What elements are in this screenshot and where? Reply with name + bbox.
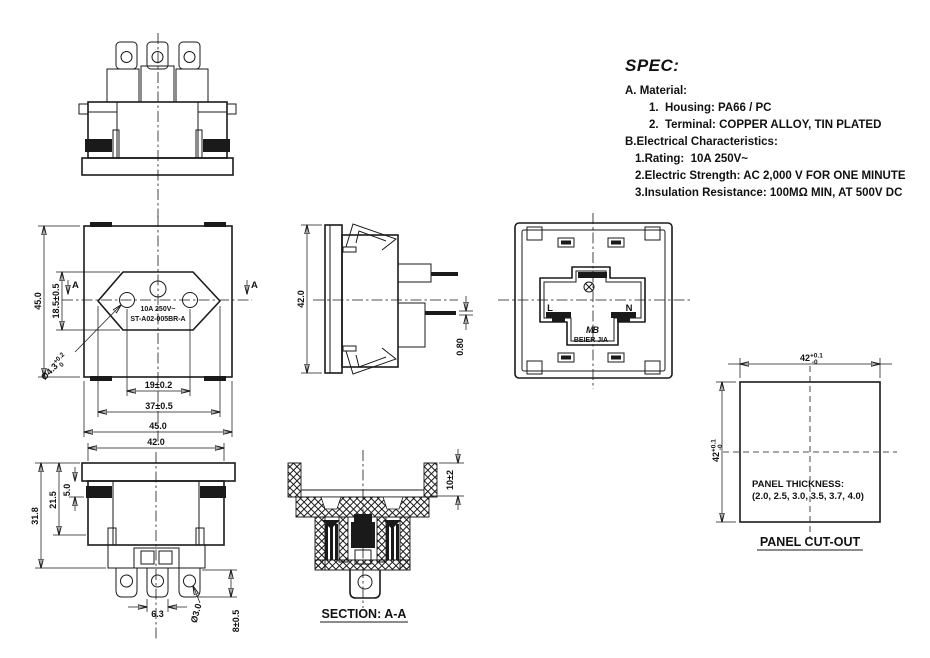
dim-total-depth: 31.8 (30, 463, 106, 568)
dim-front-recess-height: 18.5±0.5 (51, 272, 120, 330)
spec-line: 2. Terminal: COPPER ALLOY, TIN PLATED (625, 117, 925, 134)
terminal-pin (431, 272, 458, 276)
brand-logo: MB (586, 325, 599, 335)
flange-plate (82, 158, 233, 175)
top-body (79, 102, 236, 175)
earth-terminal-slot (578, 272, 607, 278)
panel-cutout-title: PANEL CUT-OUT (760, 535, 861, 549)
spec-line: 1.Rating: 10A 250V~ (625, 151, 925, 168)
svg-text:0.80: 0.80 (455, 338, 465, 356)
earth-tab (350, 570, 380, 598)
dim-clip-depth: 5.0 (62, 467, 84, 511)
terminal-hole (121, 575, 133, 587)
dim-body-depth: 21.5 (48, 463, 86, 535)
terminal-pin (425, 311, 456, 315)
section-contacts (322, 514, 401, 564)
svg-text:45.0: 45.0 (33, 292, 43, 310)
back-inner-frame (522, 230, 665, 371)
svg-text:45.0: 45.0 (149, 421, 167, 431)
view-top (79, 33, 236, 218)
terminal-block (398, 303, 425, 347)
dim-side-height: 42.0 (296, 225, 322, 373)
svg-text:37±0.5: 37±0.5 (145, 401, 172, 411)
svg-text:Ø4.3+0.20: Ø4.3+0.20 (39, 351, 71, 384)
svg-text:6.3: 6.3 (151, 609, 164, 619)
top-latch (343, 224, 396, 252)
terminal-hole (121, 52, 132, 63)
earth-tab-hole (358, 575, 372, 589)
latch-band (85, 139, 112, 152)
view-panel-cutout: 42+0.1-0 42+0.1-0 PANEL THICKNESS: (2.0,… (711, 353, 898, 551)
spec-line: 2.Electric Strength: AC 2,000 V FOR ONE … (625, 168, 925, 185)
spec-line: A. Material: (625, 83, 925, 100)
bottom-terminals (116, 568, 200, 597)
svg-text:10±2: 10±2 (445, 470, 455, 490)
svg-text:19±0.2: 19±0.2 (145, 380, 172, 390)
section-mark-left: A (68, 280, 79, 294)
terminal-block (398, 264, 431, 282)
terminal-hole (152, 575, 164, 587)
technical-drawing-page: SPEC: A. Material: 1. Housing: PA66 / PC… (0, 0, 930, 658)
section-title: SECTION: A-A (322, 607, 407, 621)
top-terminal-bases (107, 66, 208, 102)
back-outer-frame (515, 223, 672, 378)
svg-text:8±0.5: 8±0.5 (231, 610, 241, 632)
side-body (342, 235, 398, 367)
svg-text:42.0: 42.0 (147, 437, 165, 447)
svg-text:5.0: 5.0 (62, 484, 72, 497)
view-front: 10A 250V~ ST-A02-005BR-A A A 45.0 18.5± (33, 216, 258, 442)
rating-marking: 10A 250V~ (141, 306, 176, 313)
bottom-latch (343, 346, 396, 374)
panel-thickness-note: PANEL THICKNESS: (752, 479, 844, 490)
corner-clips (527, 227, 660, 374)
spec-line: B.Electrical Characteristics: (625, 134, 925, 151)
spec-block: SPEC: A. Material: 1. Housing: PA66 / PC… (625, 56, 925, 202)
spec-title: SPEC: (625, 56, 925, 76)
terminal-hole (184, 52, 195, 63)
svg-text:21.5: 21.5 (48, 491, 58, 509)
section-mark-right: A (247, 280, 258, 294)
spec-line: 1. Housing: PA66 / PC (625, 100, 925, 117)
dim-terminal-hole-dia: Ø3.0 (189, 586, 204, 624)
view-side: 42.0 0.80 (296, 224, 473, 374)
terminal-slots-ln (546, 312, 636, 322)
svg-text:42.0: 42.0 (296, 290, 306, 308)
brand-name: BEIER JIA (574, 337, 608, 344)
view-back: L N MB BEIER JIA (498, 213, 690, 389)
terminal-hole (152, 52, 163, 63)
terminal-hole (184, 575, 196, 587)
front-flange (325, 225, 342, 373)
svg-text:18.5±0.5: 18.5±0.5 (51, 284, 61, 319)
spec-line: 3.Insulation Resistance: 100MΩ MIN, AT 5… (625, 185, 925, 202)
svg-text:31.8: 31.8 (30, 507, 40, 525)
section-letter: A (251, 280, 258, 291)
view-section: 10±2 SECTION: A-A (288, 449, 464, 622)
dim-cutout-width: 42+0.1-0 (728, 353, 892, 379)
earth-screw (584, 282, 594, 292)
latch-band (203, 139, 230, 152)
svg-text:Ø3.0: Ø3.0 (189, 603, 204, 624)
dim-terminal-length: 8±0.5 (198, 570, 241, 632)
model-marking: ST-A02-005BR-A (130, 316, 185, 323)
panel-thickness-values: (2.0, 2.5, 3.0, 3.5, 3.7, 4.0) (752, 491, 864, 502)
flange-plate (82, 463, 235, 481)
dim-terminal-width: 6.3 (128, 599, 187, 619)
section-letter: A (72, 280, 79, 291)
view-bottom: 42.0 31.8 21.5 5.0 (30, 437, 241, 641)
dim-pin-thickness: 0.80 (455, 296, 473, 356)
